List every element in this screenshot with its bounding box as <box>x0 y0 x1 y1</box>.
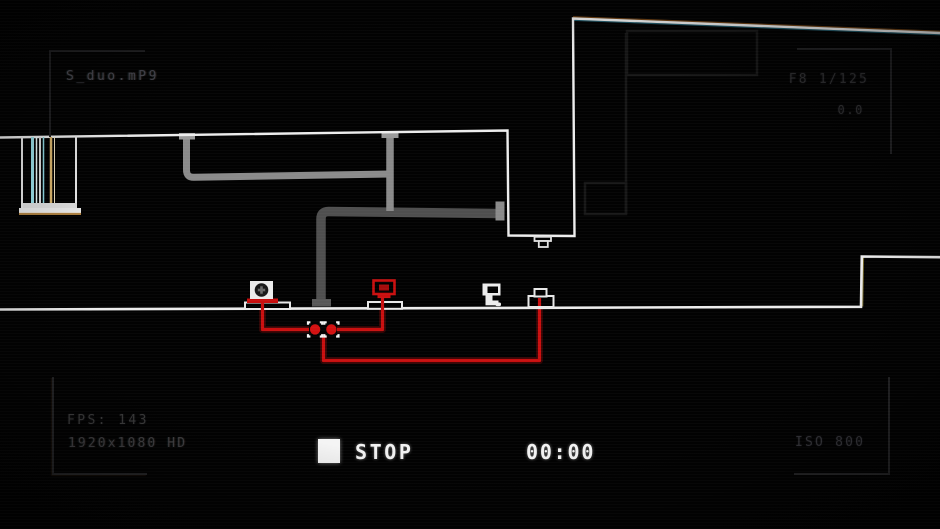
pipe-end-cap <box>496 202 505 221</box>
exposure-readout: 0.0 <box>838 103 864 117</box>
red-wires <box>263 301 540 361</box>
glitch-pillar <box>19 136 81 215</box>
ceiling-lamp <box>535 237 552 247</box>
recording-filename: S_duo.mP9 <box>66 69 159 84</box>
button-pedestal[interactable] <box>529 289 554 307</box>
wire-node[interactable] <box>324 322 338 336</box>
plinth <box>368 302 402 309</box>
plinth <box>245 303 290 310</box>
stop-square-icon <box>318 439 340 463</box>
ceiling-line <box>0 19 940 237</box>
pipe-foot <box>312 299 331 307</box>
camcorder-viewport: S_duo.mP9 F8 1/125 0.0 FPS: 143 1920x108… <box>0 0 940 529</box>
timecode-readout: 00:00 <box>526 440 595 464</box>
level-outline <box>0 17 940 310</box>
aperture-shutter-readout: F8 1/125 <box>789 72 869 87</box>
fps-readout: FPS: 143 <box>67 413 149 428</box>
floor-line <box>0 257 940 310</box>
iso-readout: ISO 800 <box>795 435 865 450</box>
red-crt-monitor[interactable] <box>368 281 402 311</box>
transport-status-label: STOP <box>355 440 414 464</box>
computer-terminal[interactable] <box>483 284 502 307</box>
wire-node[interactable] <box>308 322 322 336</box>
transport-status: STOP <box>318 438 340 464</box>
pipes <box>179 132 505 307</box>
resolution-readout: 1920x1080 HD <box>68 436 187 451</box>
speaker-device[interactable] <box>245 281 290 311</box>
background-dim-pipes <box>585 31 757 214</box>
